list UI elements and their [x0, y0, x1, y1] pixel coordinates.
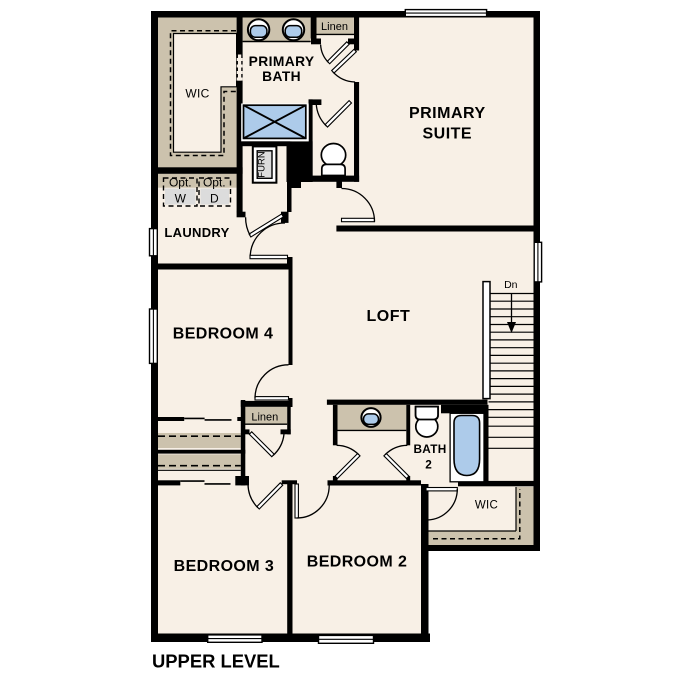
svg-text:WIC: WIC: [185, 87, 209, 101]
svg-text:Opt.: Opt.: [169, 176, 192, 190]
svg-text:2: 2: [425, 458, 432, 472]
svg-text:UPPER LEVEL: UPPER LEVEL: [152, 651, 280, 672]
svg-text:SUITE: SUITE: [422, 126, 472, 143]
svg-text:BEDROOM 2: BEDROOM 2: [307, 554, 408, 571]
svg-text:PRIMARY: PRIMARY: [409, 105, 486, 122]
svg-text:FURN: FURN: [257, 151, 268, 178]
svg-text:W: W: [175, 192, 187, 206]
svg-text:BATH: BATH: [262, 69, 301, 84]
svg-text:Opt.: Opt.: [203, 176, 226, 190]
svg-text:LOFT: LOFT: [367, 308, 411, 325]
svg-text:BATH: BATH: [413, 442, 446, 456]
svg-text:Dn: Dn: [504, 279, 518, 291]
svg-text:WIC: WIC: [475, 500, 498, 512]
svg-text:Linen: Linen: [321, 21, 348, 33]
svg-text:PRIMARY: PRIMARY: [249, 54, 315, 69]
svg-text:Linen: Linen: [251, 412, 278, 424]
svg-text:BEDROOM 4: BEDROOM 4: [173, 326, 274, 343]
svg-text:LAUNDRY: LAUNDRY: [164, 225, 229, 240]
svg-text:BEDROOM 3: BEDROOM 3: [174, 558, 275, 575]
svg-text:D: D: [210, 192, 219, 206]
